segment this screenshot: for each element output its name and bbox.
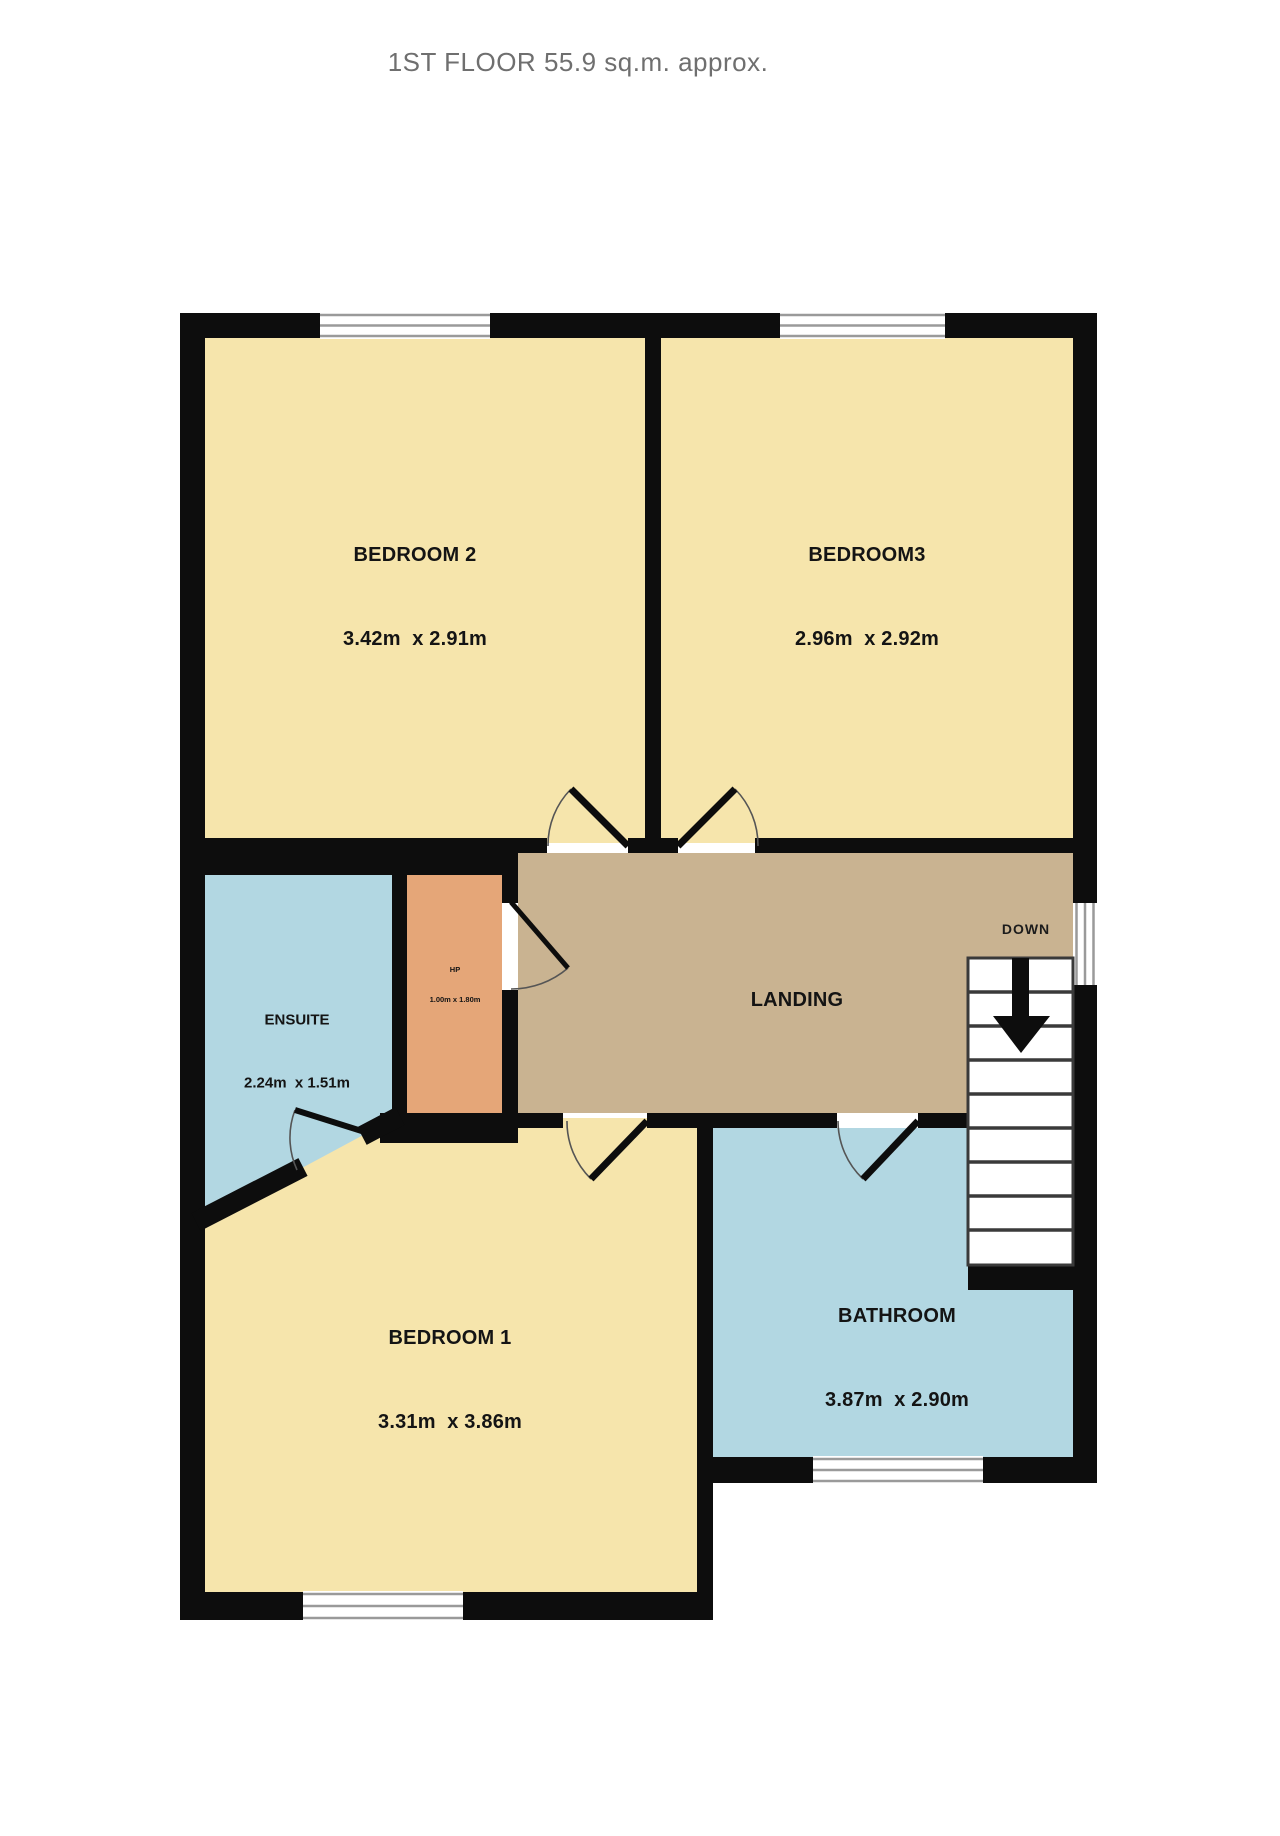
ensuite-label: ENSUITE 2.24m x 1.51m — [244, 968, 350, 1115]
wall-ensuite-hp — [392, 875, 407, 1125]
ensuite-name: ENSUITE — [244, 1010, 350, 1031]
wall-landing-bottom-left — [518, 1113, 563, 1128]
bedroom1-name: BEDROOM 1 — [378, 1324, 522, 1352]
bedroom2-name: BEDROOM 2 — [343, 541, 487, 569]
wall-left — [180, 313, 205, 1620]
stairs-down-label: DOWN — [1002, 889, 1050, 953]
wall-landing-top-right — [755, 838, 1073, 853]
window-bathroom — [813, 1456, 983, 1484]
window-landing-right — [1073, 903, 1097, 985]
down-text: DOWN — [1002, 921, 1050, 937]
window-bedroom3 — [780, 312, 945, 339]
hp-dims: 1.00m x 1.80m — [430, 995, 481, 1005]
wall-below-stairs — [968, 1265, 1097, 1290]
bedroom2-label: BEDROOM 2 3.42m x 2.91m — [343, 485, 487, 681]
bedroom3-dims: 2.96m x 2.92m — [795, 625, 939, 653]
wall-bedroom1-bathroom — [697, 1113, 713, 1592]
landing-name: LANDING — [751, 986, 844, 1014]
hp-name: HP — [430, 965, 481, 975]
floor-title-area: 55.9 sq.m. approx. — [544, 47, 768, 77]
hp-closet-label: HP 1.00m x 1.80m — [430, 945, 481, 1015]
bedroom1-dims: 3.31m x 3.86m — [378, 1408, 522, 1436]
bedroom3-name: BEDROOM3 — [795, 541, 939, 569]
wall-hp-landing-lower — [502, 990, 518, 1115]
window-bedroom2 — [320, 312, 490, 339]
wall-landing-bottom-right — [918, 1113, 968, 1128]
wall-right — [1073, 313, 1097, 1483]
wall-bedroom2-bedroom3 — [645, 338, 661, 853]
wall-hp-landing-upper — [502, 853, 518, 903]
bedroom1-label: BEDROOM 1 3.31m x 3.86m — [378, 1268, 522, 1464]
bathroom-label: BATHROOM 3.87m x 2.90m — [825, 1246, 969, 1442]
floorplan — [0, 0, 1280, 1836]
bathroom-name: BATHROOM — [825, 1302, 969, 1330]
wall-landing-top-center — [628, 838, 678, 853]
landing-label: LANDING — [751, 930, 844, 1042]
floor-title-name: 1ST FLOOR — [388, 47, 537, 77]
ensuite-dims: 2.24m x 1.51m — [244, 1073, 350, 1094]
bedroom2-dims: 3.42m x 2.91m — [343, 625, 487, 653]
bedroom3-label: BEDROOM3 2.96m x 2.92m — [795, 485, 939, 681]
window-bedroom1 — [303, 1591, 463, 1621]
staircase — [968, 958, 1073, 1265]
bathroom-dims: 3.87m x 2.90m — [825, 1386, 969, 1414]
wall-landing-top-left — [518, 838, 547, 853]
wall-above-ensuite — [180, 838, 518, 875]
wall-landing-bottom-center — [647, 1113, 837, 1128]
wall-top — [180, 313, 1097, 338]
floor-title: 1ST FLOOR 55.9 sq.m. approx. — [388, 46, 769, 78]
